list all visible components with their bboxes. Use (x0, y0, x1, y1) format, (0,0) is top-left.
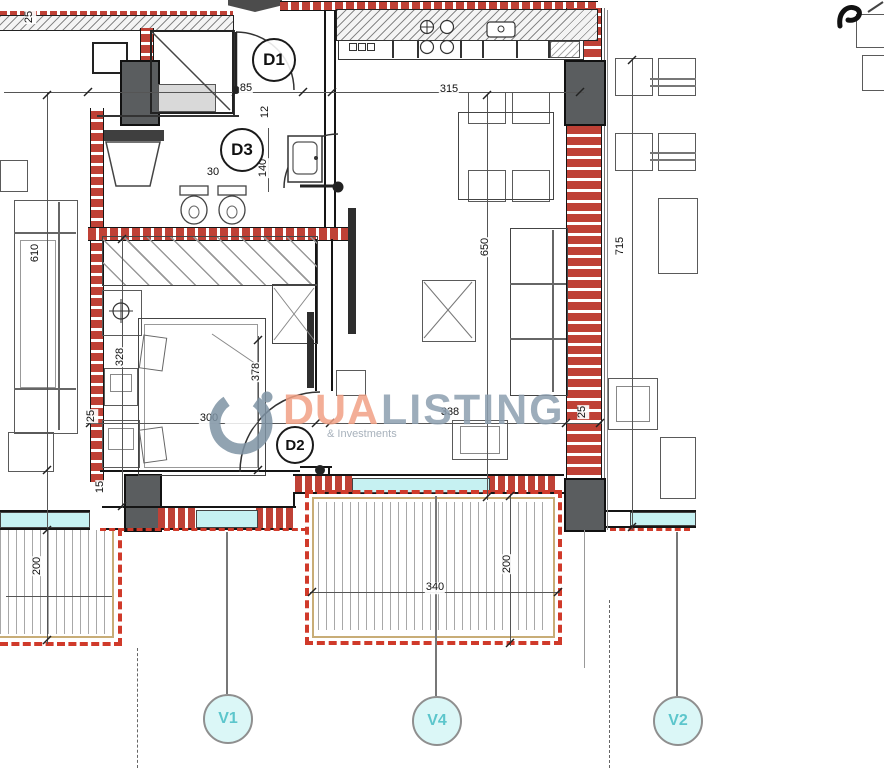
hob-knob (358, 43, 366, 51)
bedroom-south-wall-line (100, 470, 300, 472)
dim-living-length: 650 (480, 237, 492, 257)
neighbor-right-wall-line (607, 10, 608, 530)
washbasin-counter (288, 136, 322, 182)
neighbor-left-unit (0, 160, 28, 192)
v1-leader (226, 532, 228, 694)
neighbor-left-sofa-arm (14, 232, 76, 234)
brand-tagline: & Investments (327, 428, 397, 440)
neighbor-left-sofa-arm (14, 388, 76, 390)
neighbor-right-chair (658, 58, 696, 96)
window-mark-v1: V1 (203, 694, 253, 744)
dim-wc: 30 (206, 167, 220, 179)
dim-hall: 12 (260, 105, 272, 119)
bidet-bowl (219, 196, 245, 224)
dim-kitchen: 315 (439, 84, 459, 96)
neighbor-left-sofa-back (58, 202, 60, 430)
washing-machine-drum (158, 84, 216, 112)
dim-line-715 (632, 58, 633, 530)
nightstand-inner (108, 428, 134, 450)
bath-divider (97, 115, 239, 117)
dim-line-top (4, 92, 584, 93)
neighbor-right-table-line (650, 85, 696, 87)
corner-unit (856, 14, 884, 48)
cabinet-divider (516, 40, 518, 58)
dim-terrace-left-depth: 200 (32, 556, 44, 576)
dim-left-length: 610 (30, 243, 42, 263)
shower-wall-bar (104, 130, 164, 141)
dim-bedroom-inner: 328 (115, 347, 127, 367)
neighbor-right-chair (615, 133, 653, 171)
washbasin-tap (314, 156, 318, 160)
sofa-cushion-line (510, 338, 566, 340)
v2-leader (676, 532, 678, 696)
brand-logo-icon (205, 384, 279, 460)
sofa-cushion-line (510, 283, 566, 285)
window-mark-v4: V4 (412, 696, 462, 746)
lot-dash-line (137, 648, 138, 768)
toilet-tank (180, 186, 208, 195)
shower-tray (106, 142, 160, 186)
living-tv (348, 208, 356, 334)
pillar-bottom-left (124, 474, 162, 532)
sofa-back-line (552, 230, 554, 392)
entrance-porch (228, 0, 282, 12)
v4-leader (435, 496, 437, 696)
coffee-table (422, 280, 476, 342)
dining-table (458, 112, 554, 200)
dim-terrace-depth: 200 (502, 554, 514, 574)
cabinet-divider (417, 40, 419, 58)
bedroom-window-sill (196, 510, 258, 528)
dim-line-610 (47, 92, 48, 644)
dim-sill: 15 (95, 480, 107, 494)
bidet-bowl-inner (227, 206, 237, 218)
pen-tick-annotation (868, 2, 883, 12)
bedroom-drawer-inner (110, 374, 132, 392)
cabinet-divider (392, 40, 394, 58)
bidet-tank (218, 186, 246, 195)
door-label-d3: D3 (220, 128, 264, 172)
floor-plan: 25 85 12 30 140 315 650 715 610 328 25 3… (0, 0, 884, 768)
boundary-dash-center (100, 528, 307, 531)
toilet-bowl (181, 196, 207, 224)
corner-unit (862, 55, 884, 91)
door-label-d1: D1 (252, 38, 296, 82)
dim-bedroom-wall: 25 (86, 409, 98, 423)
hob-knob (349, 43, 357, 51)
neighbor-right-chair (615, 58, 653, 96)
pillar-top-right (564, 60, 606, 126)
bedroom-tv (307, 312, 314, 388)
cabinet-divider (460, 40, 462, 58)
bedroom-window-jamb-left (158, 508, 196, 528)
neighbor-right-table-line (650, 78, 696, 80)
dim-living-wall: 25 (577, 405, 589, 419)
hob-knob (367, 43, 375, 51)
dim-wall-top: 25 (24, 10, 36, 24)
left-neighbor-window-sill (0, 512, 90, 528)
toilet-bowl-inner (189, 206, 199, 218)
washbasin (293, 142, 317, 174)
sofa (510, 228, 568, 396)
boundary-dash-right (610, 528, 690, 531)
neighbor-right-sofa (658, 198, 698, 274)
lot-dash-line (609, 600, 610, 768)
brand-name-secondary: LISTING (381, 386, 565, 435)
dim-line-328 (122, 236, 123, 508)
watermark: DUA LISTING & Investments (205, 384, 565, 454)
cabinet-divider (482, 40, 484, 58)
terrace-left-deck (0, 530, 108, 634)
dim-entry: 85 (239, 83, 253, 95)
window-mark-v2: V2 (653, 696, 703, 746)
dim-line-left-terrace (6, 596, 112, 597)
right-neighbor-window-sill (630, 512, 696, 526)
neighbor-right-armchair-inner (616, 386, 650, 422)
kitchen-counter (336, 9, 598, 41)
bedroom-window-jamb-right (256, 508, 296, 528)
neighbor-right-armchair2 (660, 437, 696, 499)
pillar-bottom-right (564, 478, 606, 532)
boundary-line (584, 530, 585, 668)
wall-bath-east (324, 10, 336, 227)
bed-pillow (139, 426, 167, 463)
dim-right-length: 715 (615, 236, 627, 256)
dim-terrace-width: 340 (425, 582, 445, 594)
wardrobe (102, 236, 318, 286)
neighbor-right-table-line (650, 159, 696, 161)
neighbor-right-table-line (650, 152, 696, 154)
fridge (550, 41, 580, 58)
bed-pillow (139, 334, 167, 371)
dim-bedroom-length: 378 (251, 362, 263, 382)
